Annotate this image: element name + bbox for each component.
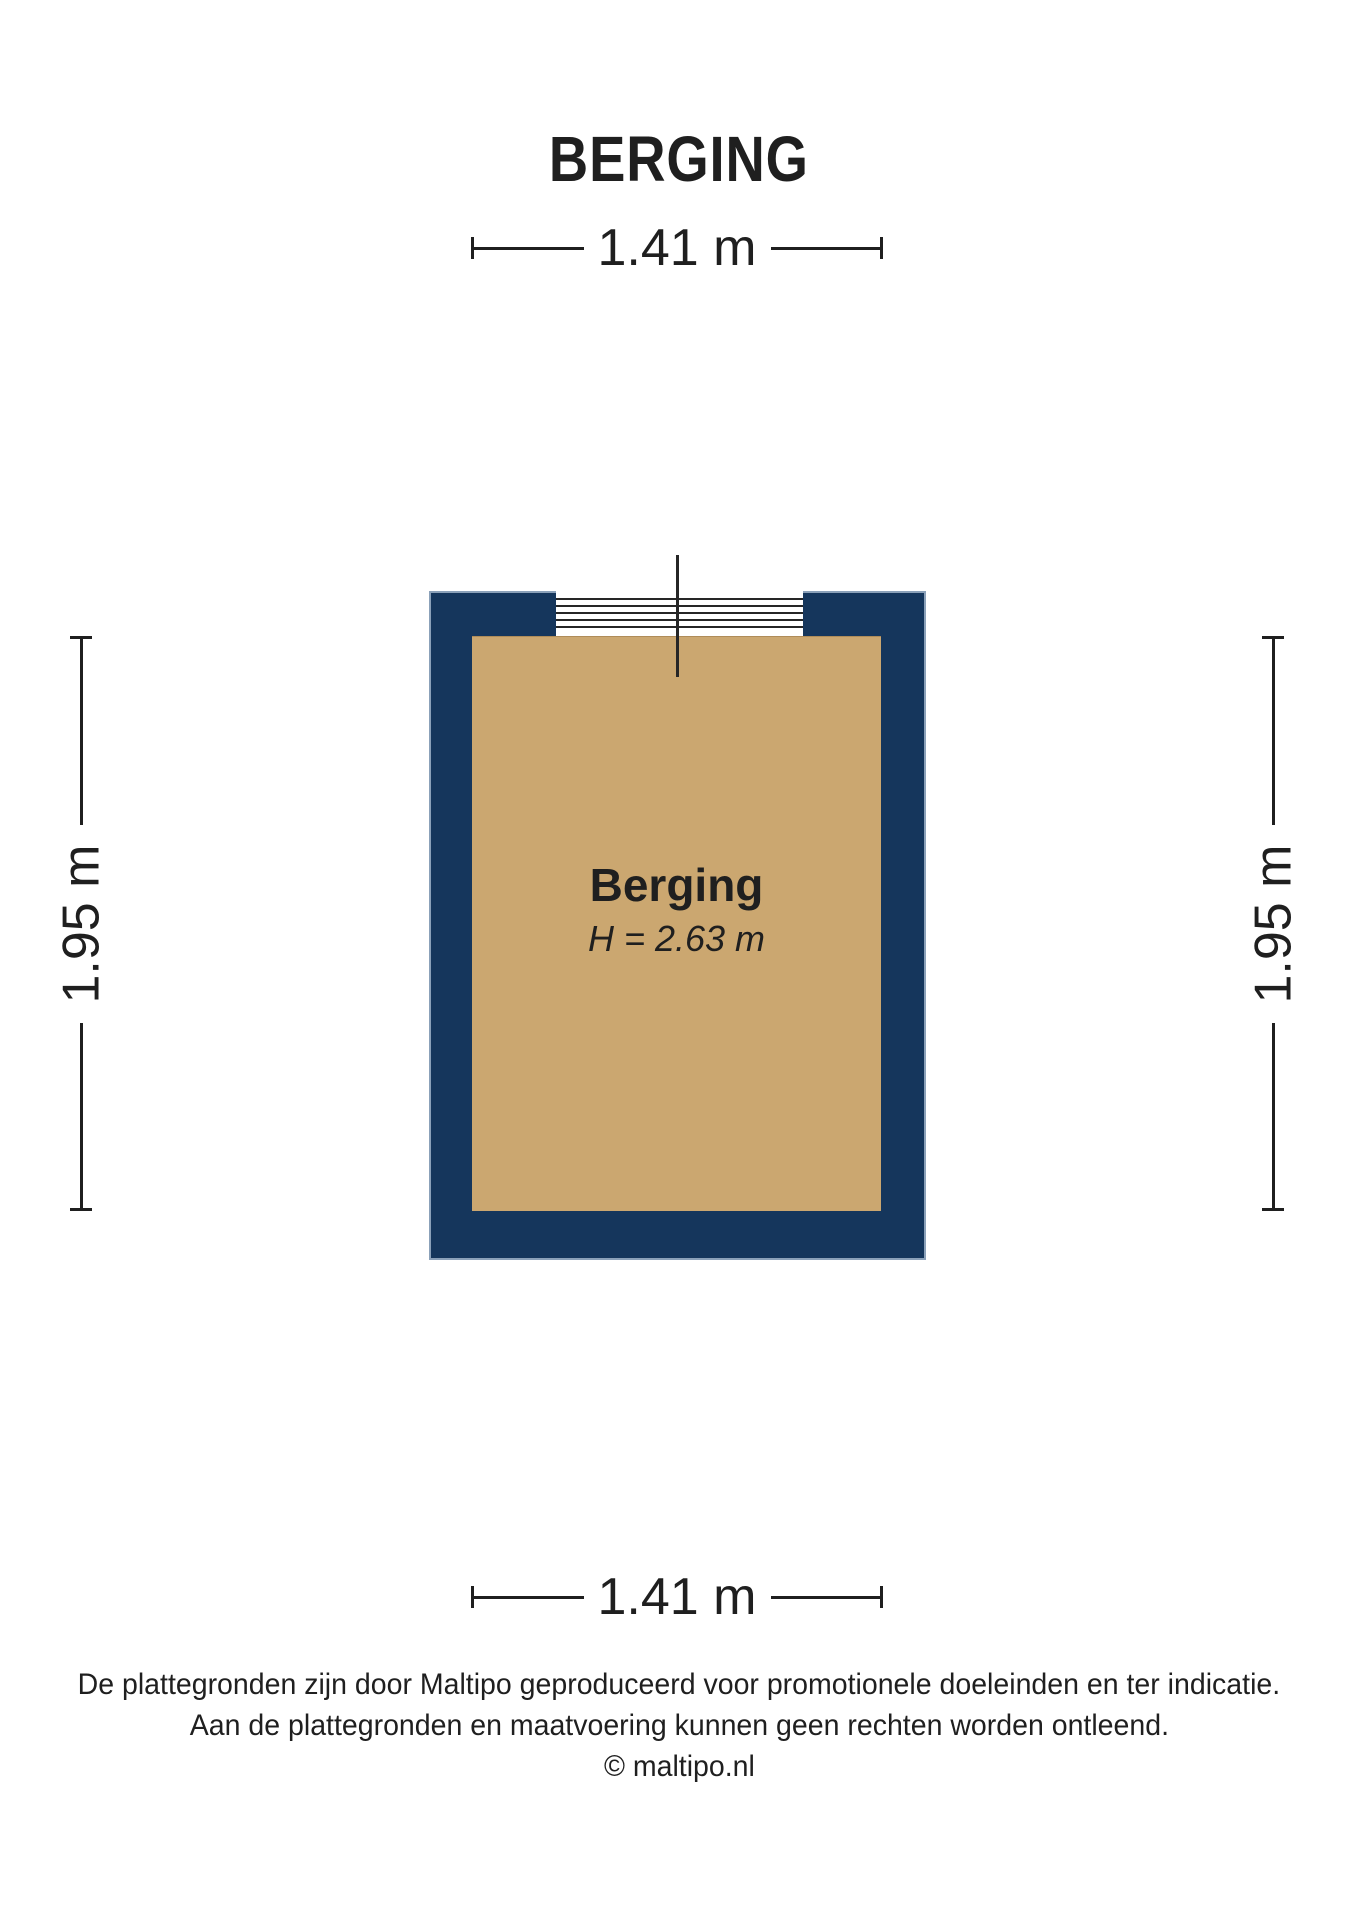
door-marker-line: [676, 555, 679, 677]
dimension-line-segment: [474, 247, 584, 250]
dimension-line-segment: [1272, 639, 1275, 825]
footer-disclaimer: De plattegronden zijn door Maltipo gepro…: [0, 1664, 1358, 1787]
page-title-text: BERGING: [549, 122, 809, 196]
footer-copyright: © maltipo.nl: [604, 1746, 755, 1787]
dimension-line-segment: [80, 639, 83, 825]
dimension-line-segment: [80, 1023, 83, 1209]
room-name-label: Berging: [472, 858, 881, 912]
dimension-top: 1.41 m: [471, 222, 883, 274]
dimension-right: 1.95 m: [1247, 636, 1299, 1211]
dimension-left: 1.95 m: [55, 636, 107, 1211]
footer-disclaimer-line2: Aan de plattegronden en maatvoering kunn…: [189, 1705, 1168, 1746]
page-title: BERGING: [0, 122, 1358, 196]
room-label-block: Berging H = 2.63 m: [472, 858, 881, 962]
dimension-tick-bottom: [1262, 1208, 1284, 1211]
door-threshold-lines: [556, 598, 803, 628]
dimension-tick-right: [880, 1586, 883, 1608]
room-height-label: H = 2.63 m: [472, 916, 881, 962]
footer-disclaimer-line1: De plattegronden zijn door Maltipo gepro…: [78, 1664, 1281, 1705]
dimension-left-label: 1.95 m: [55, 844, 107, 1003]
dimension-right-label: 1.95 m: [1247, 844, 1299, 1003]
dimension-line-segment: [1272, 1023, 1275, 1209]
dimension-tick-bottom: [70, 1208, 92, 1211]
dimension-line-segment: [771, 1596, 881, 1599]
dimension-line-segment: [474, 1596, 584, 1599]
dimension-bottom: 1.41 m: [471, 1571, 883, 1623]
dimension-line-segment: [771, 247, 881, 250]
dimension-bottom-label: 1.41 m: [584, 1571, 771, 1623]
dimension-tick-right: [880, 237, 883, 259]
dimension-top-label: 1.41 m: [584, 222, 771, 274]
